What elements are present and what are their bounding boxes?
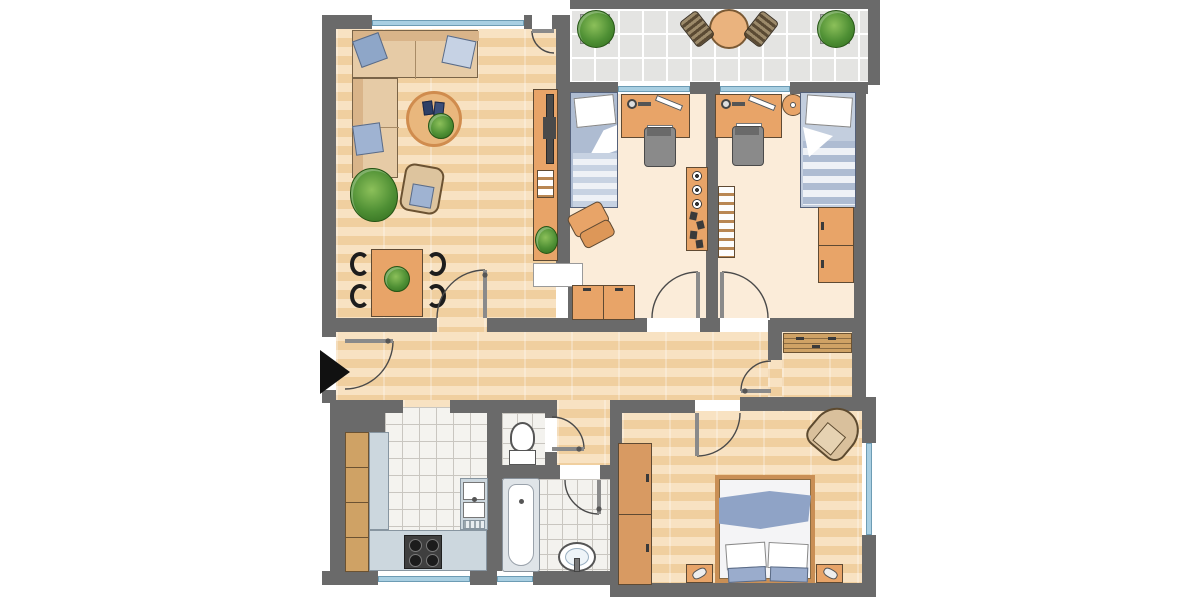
kids-left-door-arc (652, 272, 698, 318)
door-swings (0, 0, 1200, 600)
door-handle (576, 446, 581, 451)
alcove-door-arc (741, 361, 771, 391)
living-balcony-door-arc (532, 31, 554, 53)
bedroom-door-arc (697, 413, 740, 456)
kids-right-door-arc (722, 272, 768, 318)
wc-door-arc (552, 417, 584, 449)
door-handle (482, 272, 487, 277)
floor-plan (0, 0, 1200, 600)
bathroom-door-arc (565, 480, 599, 514)
door-handle (385, 338, 390, 343)
door-handle (742, 388, 747, 393)
entrance-door-arc (345, 341, 393, 389)
living-hall-door-arc (437, 270, 485, 318)
door-handle (596, 506, 601, 511)
